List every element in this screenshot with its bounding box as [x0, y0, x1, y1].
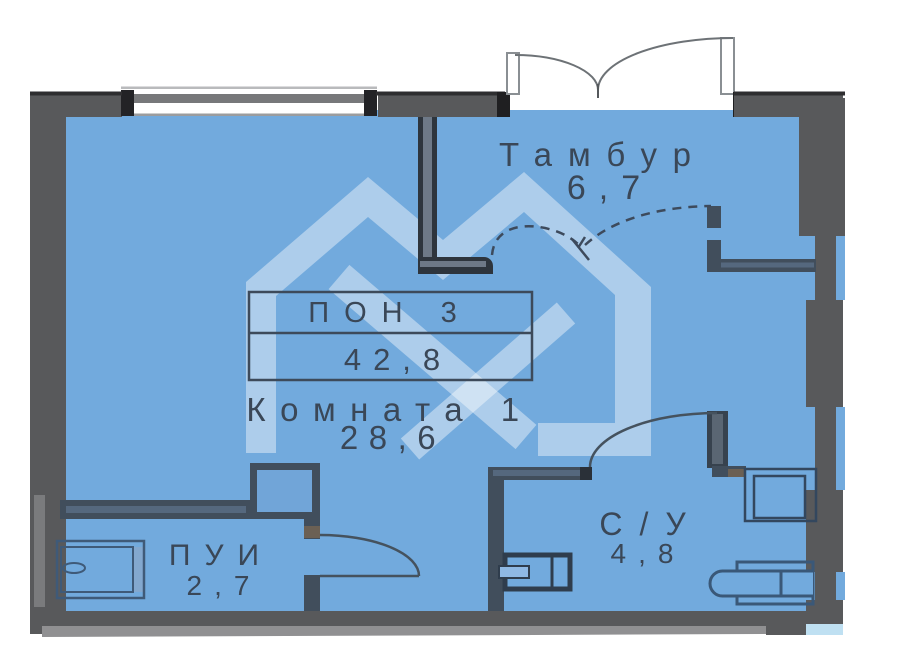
svg-text:ПОН 3: ПОН 3	[308, 297, 472, 329]
svg-text:28,6: 28,6	[340, 419, 446, 456]
svg-text:6,7: 6,7	[567, 169, 653, 207]
svg-text:4,8: 4,8	[611, 538, 686, 569]
svg-text:Тамбур: Тамбур	[499, 136, 707, 173]
svg-text:2,7: 2,7	[187, 570, 262, 601]
svg-text:42,8: 42,8	[344, 342, 452, 377]
svg-text:С/У: С/У	[599, 506, 702, 542]
svg-text:ПУИ: ПУИ	[169, 539, 273, 572]
